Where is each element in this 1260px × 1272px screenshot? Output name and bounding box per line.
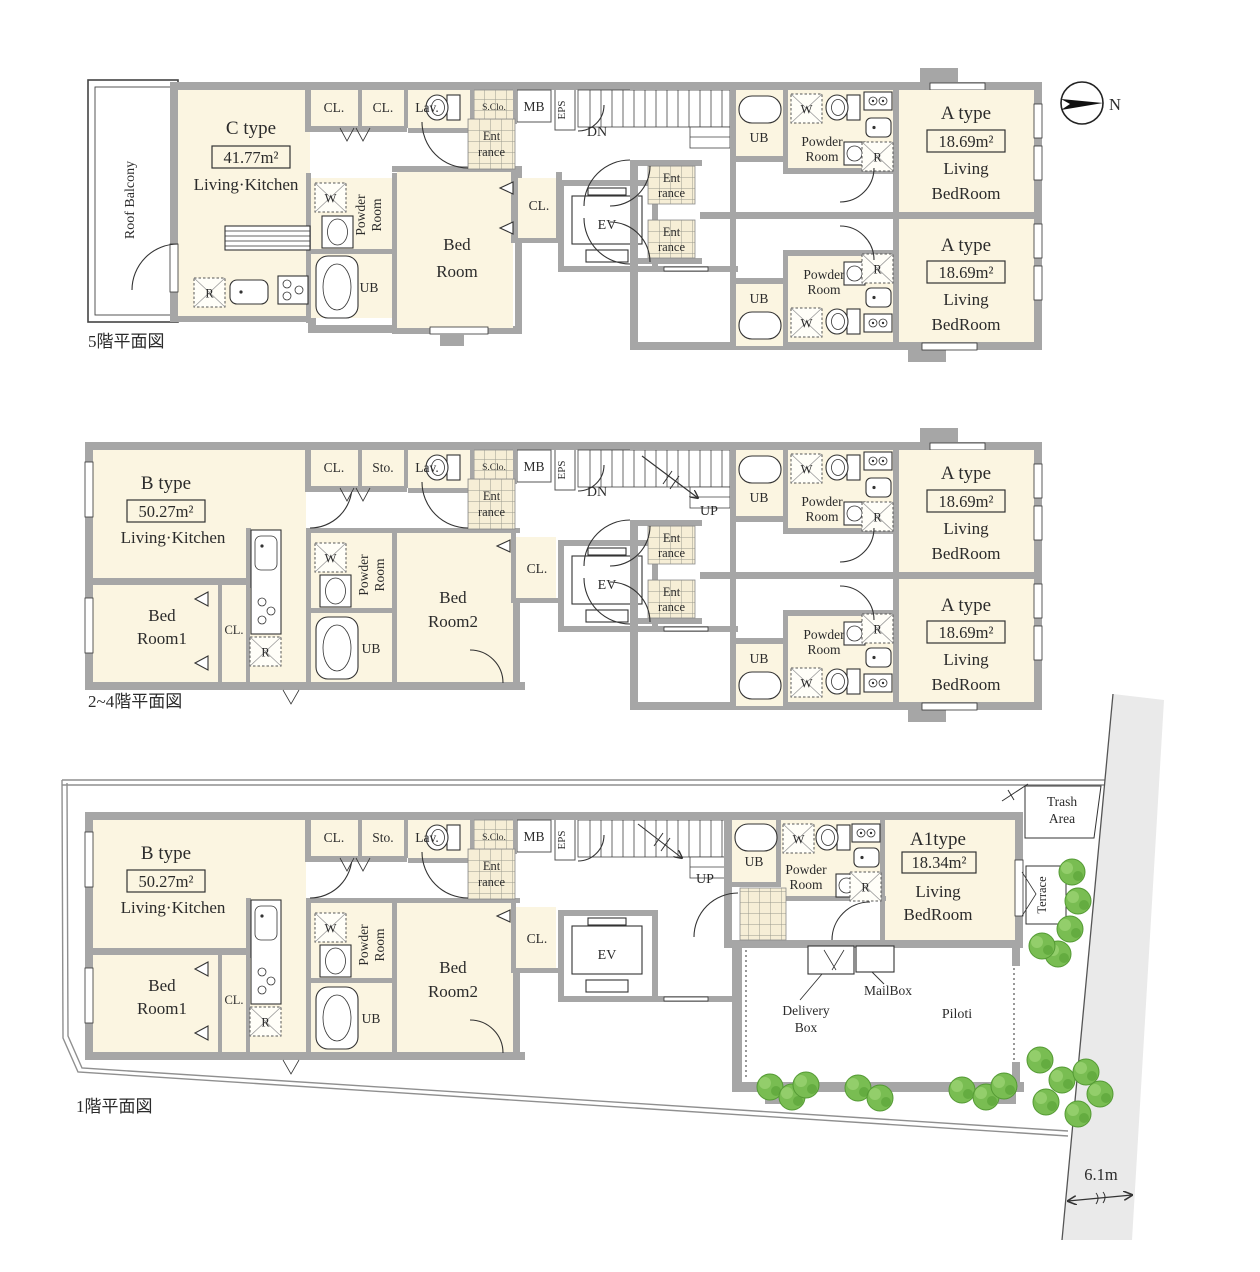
delivery-box-icon — [808, 946, 854, 974]
entrance-lobby — [740, 888, 786, 940]
svg-text:Piloti: Piloti — [942, 1007, 972, 1022]
svg-text:UB: UB — [360, 280, 379, 295]
svg-text:Sto.: Sto. — [372, 460, 393, 475]
svg-text:CL.: CL. — [529, 198, 550, 213]
svg-text:Living: Living — [915, 882, 961, 901]
floorplan-sheet: W R — [0, 0, 1260, 1272]
svg-text:A1type: A1type — [910, 829, 966, 850]
roof-balcony: Roof Balcony — [88, 80, 178, 322]
svg-text:Powder: Powder — [785, 862, 827, 877]
svg-text:DN: DN — [587, 125, 607, 140]
svg-text:N: N — [1109, 95, 1121, 114]
svg-text:Roof Balcony: Roof Balcony — [123, 161, 138, 239]
svg-text:Living·Kitchen: Living·Kitchen — [194, 175, 299, 194]
svg-text:Bed: Bed — [443, 235, 471, 254]
svg-text:41.77m²: 41.77m² — [224, 148, 279, 167]
svg-text:Sto.: Sto. — [372, 830, 393, 845]
svg-text:MailBox: MailBox — [864, 983, 912, 998]
svg-text:Room: Room — [789, 877, 823, 892]
mailbox-icon — [856, 946, 894, 972]
svg-text:BedRoom: BedRoom — [904, 905, 973, 924]
svg-text:Trash: Trash — [1047, 794, 1078, 809]
svg-text:UP: UP — [700, 504, 718, 519]
svg-text:UP: UP — [696, 872, 714, 887]
svg-text:6.1m: 6.1m — [1084, 1165, 1118, 1184]
svg-text:C type: C type — [226, 118, 276, 139]
svg-text:Box: Box — [795, 1020, 818, 1035]
floor2-4-caption: 2~4階平面図 — [88, 692, 182, 711]
svg-text:Area: Area — [1049, 811, 1075, 826]
floor5-caption: 5階平面図 — [88, 332, 165, 351]
floorplan-canvas: W R — [0, 0, 1260, 1272]
svg-text:Delivery: Delivery — [782, 1003, 829, 1018]
svg-text:CL.: CL. — [373, 100, 394, 115]
svg-text:DN: DN — [587, 485, 607, 500]
svg-text:Terrace: Terrace — [1035, 876, 1049, 914]
svg-text:Room: Room — [369, 198, 384, 232]
svg-text:UB: UB — [745, 854, 764, 869]
svg-text:Powder: Powder — [353, 194, 368, 236]
floor1-caption: 1階平面図 — [76, 1097, 153, 1116]
svg-text:Room: Room — [436, 262, 478, 281]
svg-text:18.34m²: 18.34m² — [912, 853, 967, 872]
